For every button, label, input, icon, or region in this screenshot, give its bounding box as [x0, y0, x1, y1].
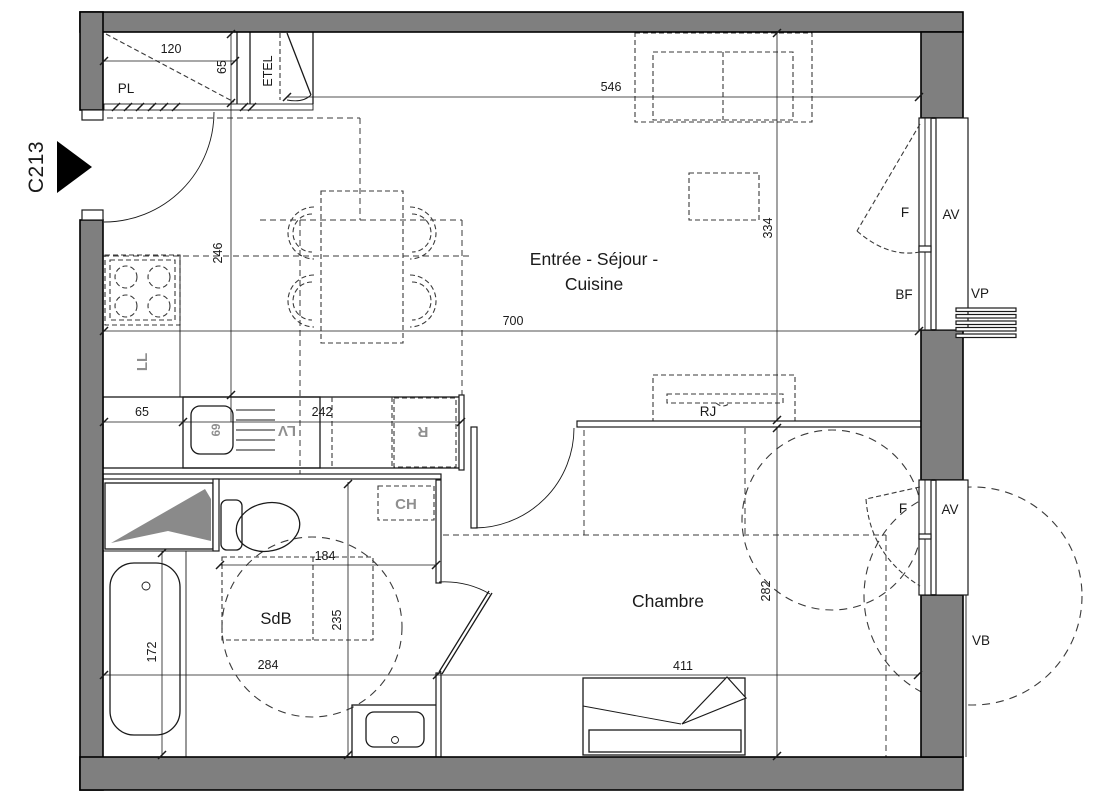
floor-plan-drawing: C213 PL ETEL Entrée - Séjour - Cuisine C…: [0, 0, 1110, 800]
window-bottom-swing: [866, 487, 920, 586]
floor-plan-page: C213 PL ETEL Entrée - Séjour - Cuisine C…: [0, 0, 1110, 800]
dim-bath-floor: 284: [258, 658, 279, 672]
shutter-slat: [956, 328, 1016, 332]
radiator-zone: [653, 375, 795, 421]
dim-counter-right: 242: [312, 405, 333, 419]
room-label-living-line2: Cuisine: [565, 274, 623, 294]
window-bottom-sash-split: [919, 534, 931, 539]
bedroom-door-arc: [474, 428, 574, 528]
bathroom-door-arc: [439, 582, 490, 594]
bathroom-divider: [213, 479, 219, 551]
dim-counter-left: 65: [135, 405, 149, 419]
dimension-ticks: [100, 29, 923, 760]
window-bottom-label: F: [899, 501, 907, 516]
blind-top-label: AV: [942, 207, 959, 222]
bathroom-clearance-box: [222, 557, 373, 640]
living-furniture: [288, 33, 812, 421]
bathroom-door-leaf: [439, 591, 492, 674]
etel-door: [287, 33, 311, 95]
burner: [148, 295, 170, 317]
bathtub-drain: [142, 582, 150, 590]
bedroom-door-leaf: [471, 427, 477, 528]
window-top-blind-band: [936, 118, 968, 330]
bed-blanket-fold: [682, 677, 746, 724]
corridor-wall-upper: [436, 480, 441, 583]
blind-bottom-label: AV: [941, 502, 958, 517]
burner: [115, 295, 137, 317]
kitchen: [103, 255, 464, 520]
right-wall-middle: [921, 330, 963, 480]
turning-circle-bathroom: [222, 537, 402, 717]
bathroom-partition: [103, 474, 441, 479]
living-bedroom-wall: [577, 421, 921, 427]
water-heater-label: CH: [395, 496, 417, 513]
corridor-wall-lower: [436, 673, 441, 757]
window-top-sash-split: [919, 246, 931, 252]
window-swing-circle-exterior: [864, 487, 1082, 705]
washer-label: LL: [134, 353, 151, 371]
vanity-shading: [111, 489, 211, 543]
room-label-living-line1: Entrée - Séjour -: [530, 249, 659, 269]
dimensions: [100, 29, 923, 760]
burner: [148, 266, 170, 288]
entry-arrow-icon: [57, 141, 92, 193]
etel-door-arc: [287, 95, 311, 101]
labels: PL ETEL Entrée - Séjour - Cuisine Chambr…: [118, 42, 990, 673]
right-wall-bottom: [921, 595, 963, 757]
left-wall-main: [80, 220, 103, 790]
dim-bedroom-width: 411: [673, 659, 693, 673]
low-window-label: BF: [895, 287, 912, 302]
top-wall: [80, 12, 963, 32]
bedroom-furniture: [583, 677, 746, 755]
counter-compartments: [332, 397, 392, 468]
zone-guides: [103, 118, 886, 757]
bed-pillow: [589, 730, 741, 752]
room-label-bedroom: Chambre: [632, 591, 704, 611]
entry-jamb-bottom: [82, 210, 103, 220]
dimension-lines: [103, 32, 919, 757]
counter-end-wall: [459, 395, 464, 470]
technical-closet-label: ETEL: [261, 55, 275, 86]
right-wall-top: [921, 32, 963, 118]
entry-door-arc: [104, 112, 214, 222]
shutter-slat: [956, 321, 1016, 325]
entry-closets: [104, 32, 313, 111]
washbasin: [366, 712, 424, 747]
dim-kitchen-depth: 246: [211, 243, 225, 264]
radiator-label: RJ: [700, 404, 717, 419]
shutter-label: VP: [971, 286, 989, 301]
shutter-slat: [956, 308, 1016, 312]
unit-label: C213: [25, 141, 48, 193]
dim-bedroom-height: 282: [759, 581, 773, 602]
dining-chairs: [288, 207, 436, 327]
dim-pl-width: 120: [161, 42, 182, 56]
dim-bath-width: 184: [315, 549, 336, 563]
bed-blanket-edge: [583, 706, 681, 724]
unit-marker: C213: [25, 141, 92, 193]
dim-bath-depth: 235: [330, 610, 344, 631]
shutter-slat: [956, 334, 1016, 338]
dishwasher-label: LV: [278, 422, 296, 439]
doors: [104, 112, 574, 674]
roller-blind-label: VB: [972, 633, 990, 648]
entry-jamb-top: [82, 110, 103, 120]
closet-label: PL: [118, 81, 135, 96]
dim-sink-width: 69: [211, 424, 223, 437]
stove-outline: [105, 255, 180, 325]
burner: [115, 266, 137, 288]
fridge-label: R: [417, 423, 428, 440]
closet-track: [104, 104, 313, 110]
shutter-slat: [956, 315, 1016, 319]
sink-drainer: [236, 410, 275, 450]
bottom-wall: [80, 757, 963, 790]
window-bottom-blind-band: [936, 480, 968, 595]
dim-living-height: 334: [761, 218, 775, 239]
closet-edges: [237, 32, 313, 104]
dining-table: [321, 191, 403, 343]
left-wall-upper: [80, 12, 103, 110]
room-label-bathroom: SdB: [260, 610, 291, 628]
dim-living-width: 546: [601, 80, 622, 94]
dim-room-width: 700: [503, 314, 524, 328]
radiator: [667, 394, 783, 403]
interior-walls: [103, 421, 921, 757]
stove-inner: [110, 260, 175, 320]
dim-pl-depth: 65: [215, 60, 229, 74]
window-top-label: F: [901, 205, 909, 220]
dim-tub-length: 172: [145, 642, 159, 663]
coffee-table: [689, 173, 759, 220]
toilet-cistern: [221, 500, 242, 550]
sink-module: [183, 397, 320, 468]
window-top-swing: [857, 124, 920, 253]
washbasin-drain: [392, 737, 399, 744]
